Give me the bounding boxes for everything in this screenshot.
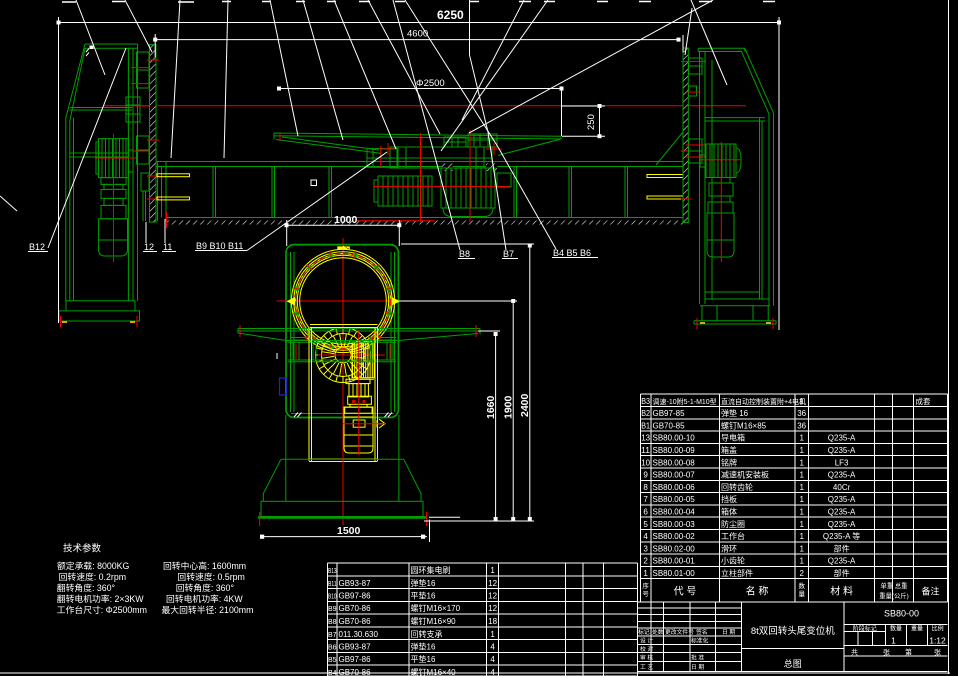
svg-text:标记: 标记 xyxy=(638,628,650,636)
svg-text:回转中心高: 1600mm: 回转中心高: 1600mm xyxy=(163,560,246,571)
svg-text:1000: 1000 xyxy=(334,214,358,226)
svg-text:GB70-85: GB70-85 xyxy=(653,421,686,430)
svg-text:1900: 1900 xyxy=(503,395,515,419)
svg-text:B13: B13 xyxy=(328,566,337,575)
svg-text:10: 10 xyxy=(641,458,650,467)
svg-text:011.30.630: 011.30.630 xyxy=(339,630,379,639)
svg-text:校 对: 校 对 xyxy=(640,645,653,653)
svg-text:日 期: 日 期 xyxy=(691,664,704,671)
svg-text:部件: 部件 xyxy=(834,543,850,553)
svg-text:3: 3 xyxy=(643,544,648,553)
svg-text:回转角度: 360°: 回转角度: 360° xyxy=(176,582,234,593)
svg-text:防尘圈: 防尘圈 xyxy=(721,519,745,529)
svg-text:1: 1 xyxy=(799,471,804,480)
svg-text:8t双回转头尾变位机: 8t双回转头尾变位机 xyxy=(751,625,835,637)
svg-text:弹垫16: 弹垫16 xyxy=(411,642,436,652)
svg-text:SB80.00-09: SB80.00-09 xyxy=(653,446,696,455)
svg-text:SB80-00: SB80-00 xyxy=(884,609,919,619)
svg-text:SB80.00-01: SB80.00-01 xyxy=(653,557,696,566)
svg-text:36: 36 xyxy=(797,421,806,430)
svg-text:SB80.00-06: SB80.00-06 xyxy=(653,483,696,492)
svg-text:Q235-A: Q235-A xyxy=(828,557,856,566)
svg-text:小齿轮: 小齿轮 xyxy=(721,556,745,566)
svg-text:B1: B1 xyxy=(641,421,650,430)
svg-text:日 期: 日 期 xyxy=(722,629,735,636)
svg-text:螺钉M16×170: 螺钉M16×170 xyxy=(411,603,461,613)
svg-text:4: 4 xyxy=(490,643,495,652)
svg-text:圆环集电刷: 圆环集电刷 xyxy=(411,565,451,575)
svg-text:B11: B11 xyxy=(328,579,337,588)
svg-text:B9: B9 xyxy=(328,604,337,613)
svg-text:1500: 1500 xyxy=(337,525,361,537)
svg-text:Q235-A: Q235-A xyxy=(828,495,856,504)
svg-text:SB80.00-03: SB80.00-03 xyxy=(653,520,696,529)
svg-text:材 料: 材 料 xyxy=(830,585,853,598)
svg-text:螺钉M16×40: 螺钉M16×40 xyxy=(411,667,457,676)
svg-text:1: 1 xyxy=(799,544,804,553)
svg-text:回转支承: 回转支承 xyxy=(411,629,443,639)
svg-text:箱体: 箱体 xyxy=(721,507,737,517)
svg-text:共: 共 xyxy=(851,648,858,657)
svg-text:11: 11 xyxy=(163,242,172,252)
svg-text:SB80.00-05: SB80.00-05 xyxy=(653,495,696,504)
svg-text:4: 4 xyxy=(490,655,495,664)
svg-text:1: 1 xyxy=(799,557,804,566)
svg-text:阶段标记: 阶段标记 xyxy=(853,625,877,633)
svg-text:13: 13 xyxy=(641,434,650,443)
svg-text:GB70-86: GB70-86 xyxy=(339,617,372,626)
svg-text:9: 9 xyxy=(643,471,648,480)
svg-text:GB93-87: GB93-87 xyxy=(339,643,372,652)
svg-text:1: 1 xyxy=(799,495,804,504)
svg-text:单重 总重: 单重 总重 xyxy=(881,581,908,590)
svg-text:设 计: 设 计 xyxy=(640,637,653,645)
svg-text:B4: B4 xyxy=(328,668,337,676)
svg-text:B6: B6 xyxy=(328,643,337,652)
svg-text:B4 B5 B6: B4 B5 B6 xyxy=(553,248,591,258)
svg-text:量: 量 xyxy=(798,590,805,598)
svg-text:GB93-87: GB93-87 xyxy=(339,579,372,588)
svg-text:GB70-86: GB70-86 xyxy=(339,668,372,676)
svg-text:滑环: 滑环 xyxy=(721,543,737,553)
svg-text:1: 1 xyxy=(799,434,804,443)
svg-text:序: 序 xyxy=(642,581,649,590)
svg-text:250: 250 xyxy=(586,114,597,130)
svg-text:B8: B8 xyxy=(459,249,470,259)
svg-text:2: 2 xyxy=(643,557,648,566)
svg-text:12: 12 xyxy=(488,579,497,588)
svg-text:GB97-86: GB97-86 xyxy=(339,655,372,664)
svg-text:批 准: 批 准 xyxy=(691,654,704,662)
svg-text:12: 12 xyxy=(144,242,154,252)
svg-text:6250: 6250 xyxy=(437,8,464,22)
svg-text:SB80.00-02: SB80.00-02 xyxy=(653,532,696,541)
svg-text:导电箱: 导电箱 xyxy=(721,433,745,443)
svg-text:Q235-A: Q235-A xyxy=(828,446,856,455)
svg-text:11: 11 xyxy=(641,446,650,455)
svg-text:36: 36 xyxy=(797,409,806,418)
svg-text:GB97-86: GB97-86 xyxy=(339,592,372,601)
svg-text:B2: B2 xyxy=(641,409,650,418)
svg-text:技术参数: 技术参数 xyxy=(63,543,102,555)
svg-text:GB97-85: GB97-85 xyxy=(653,409,686,418)
svg-text:平垫16: 平垫16 xyxy=(411,591,436,601)
svg-text:12: 12 xyxy=(488,592,497,601)
svg-text:8: 8 xyxy=(643,483,648,492)
svg-text:备注: 备注 xyxy=(921,586,939,597)
svg-text:12: 12 xyxy=(488,604,497,613)
svg-text:B8: B8 xyxy=(328,617,337,626)
svg-text:B7: B7 xyxy=(328,630,337,639)
svg-text:SB80.00-10: SB80.00-10 xyxy=(653,434,696,443)
svg-text:SB80.01-00: SB80.01-00 xyxy=(653,569,696,578)
svg-text:SB80.00-04: SB80.00-04 xyxy=(653,508,696,517)
svg-text:号: 号 xyxy=(642,590,649,598)
svg-text:1: 1 xyxy=(799,397,804,406)
svg-text:1: 1 xyxy=(799,508,804,517)
svg-text:弹垫 16: 弹垫 16 xyxy=(721,408,749,418)
svg-text:4600: 4600 xyxy=(407,29,428,40)
svg-text:成套: 成套 xyxy=(916,396,931,406)
svg-text:铭牌: 铭牌 xyxy=(721,457,737,467)
svg-text:工作台尺寸: Φ2500mm: 工作台尺寸: Φ2500mm xyxy=(57,604,147,615)
svg-text:直流自动控制装置附+4电机: 直流自动控制装置附+4电机 xyxy=(721,397,806,406)
svg-text:GB70-86: GB70-86 xyxy=(339,604,372,613)
svg-text:1: 1 xyxy=(891,636,896,646)
svg-text:立柱部件: 立柱部件 xyxy=(721,568,753,578)
svg-text:1: 1 xyxy=(799,446,804,455)
svg-text:Q235-A: Q235-A xyxy=(828,434,856,443)
svg-text:代 号: 代 号 xyxy=(674,586,697,598)
svg-text:总图: 总图 xyxy=(784,658,802,669)
svg-text:B10: B10 xyxy=(328,592,337,601)
svg-text:最大回转半径: 2100mm: 最大回转半径: 2100mm xyxy=(162,604,254,615)
svg-text:翻转角度: 360°: 翻转角度: 360° xyxy=(57,582,115,593)
svg-text:张: 张 xyxy=(934,648,941,657)
svg-text:2400: 2400 xyxy=(519,393,531,417)
svg-text:数: 数 xyxy=(798,581,805,590)
svg-text:张: 张 xyxy=(883,648,890,657)
svg-text:B12: B12 xyxy=(29,242,45,252)
svg-text:回转速度: 0.5rpm: 回转速度: 0.5rpm xyxy=(177,571,244,582)
svg-text:部件: 部件 xyxy=(834,568,850,578)
svg-text:B3: B3 xyxy=(641,397,650,406)
svg-text:1:12: 1:12 xyxy=(929,636,946,646)
svg-text:审 核: 审 核 xyxy=(640,654,653,662)
svg-text:弹垫16: 弹垫16 xyxy=(411,578,436,588)
svg-text:签名: 签名 xyxy=(696,628,708,636)
svg-text:回转速度: 0.2rpm: 回转速度: 0.2rpm xyxy=(59,571,126,582)
svg-text:数量: 数量 xyxy=(890,625,902,633)
svg-text:标准化: 标准化 xyxy=(691,637,709,645)
svg-text:重量: 重量 xyxy=(911,625,923,633)
svg-text:Q235-A 等: Q235-A 等 xyxy=(823,531,860,541)
svg-text:比例: 比例 xyxy=(932,625,944,633)
svg-text:1: 1 xyxy=(799,483,804,492)
svg-text:5: 5 xyxy=(643,520,648,529)
svg-text:工 艺: 工 艺 xyxy=(640,663,653,671)
svg-text:挡板: 挡板 xyxy=(721,494,737,504)
svg-text:处数: 处数 xyxy=(652,628,664,636)
svg-text:重量(公斤): 重量(公斤) xyxy=(879,591,908,600)
svg-text:回转齿轮: 回转齿轮 xyxy=(721,482,753,492)
svg-text:18: 18 xyxy=(488,617,497,626)
svg-text:翻转电机功率: 2×3KW: 翻转电机功率: 2×3KW xyxy=(57,593,144,604)
svg-text:工作台: 工作台 xyxy=(721,531,745,541)
svg-text:平垫16: 平垫16 xyxy=(411,654,436,664)
svg-text:LF3: LF3 xyxy=(835,458,849,467)
svg-text:4: 4 xyxy=(490,668,495,676)
svg-text:B5: B5 xyxy=(328,655,337,664)
svg-text:Q235-A: Q235-A xyxy=(828,520,856,529)
svg-text:7: 7 xyxy=(643,495,648,504)
svg-text:额定承载: 8000KG: 额定承载: 8000KG xyxy=(57,560,130,571)
svg-text:Q235-A: Q235-A xyxy=(828,508,856,517)
svg-text:SB80.02-00: SB80.02-00 xyxy=(653,544,696,553)
svg-text:螺钉M16×90: 螺钉M16×90 xyxy=(411,616,457,626)
svg-text:Q235-A: Q235-A xyxy=(828,471,856,480)
svg-text:第: 第 xyxy=(905,648,912,657)
svg-text:减速机安装板: 减速机安装板 xyxy=(721,470,769,480)
svg-text:1: 1 xyxy=(643,569,648,578)
svg-text:名 称: 名 称 xyxy=(746,585,769,598)
svg-text:SB80.00-08: SB80.00-08 xyxy=(653,458,696,467)
svg-text:B9 B10 B11: B9 B10 B11 xyxy=(196,241,243,251)
svg-text:调速-10附5-1-M10型: 调速-10附5-1-M10型 xyxy=(653,397,717,406)
svg-text:1: 1 xyxy=(490,630,495,639)
svg-text:1: 1 xyxy=(799,520,804,529)
svg-text:1: 1 xyxy=(490,566,495,575)
svg-text:SB80.00-07: SB80.00-07 xyxy=(653,471,696,480)
svg-text:Φ2500: Φ2500 xyxy=(416,78,445,89)
svg-text:箱盖: 箱盖 xyxy=(721,445,737,455)
svg-text:1: 1 xyxy=(799,458,804,467)
svg-text:1: 1 xyxy=(799,532,804,541)
svg-text:40Cr: 40Cr xyxy=(833,483,851,492)
svg-text:B7: B7 xyxy=(503,249,514,259)
svg-text:4: 4 xyxy=(643,532,648,541)
svg-text:更改文件号: 更改文件号 xyxy=(665,628,694,636)
svg-text:螺钉M16×85: 螺钉M16×85 xyxy=(721,420,767,430)
svg-text:1660: 1660 xyxy=(485,395,497,419)
svg-text:2: 2 xyxy=(799,569,804,578)
svg-text:6: 6 xyxy=(643,508,648,517)
svg-text:回转电机功率: 4KW: 回转电机功率: 4KW xyxy=(166,593,243,604)
